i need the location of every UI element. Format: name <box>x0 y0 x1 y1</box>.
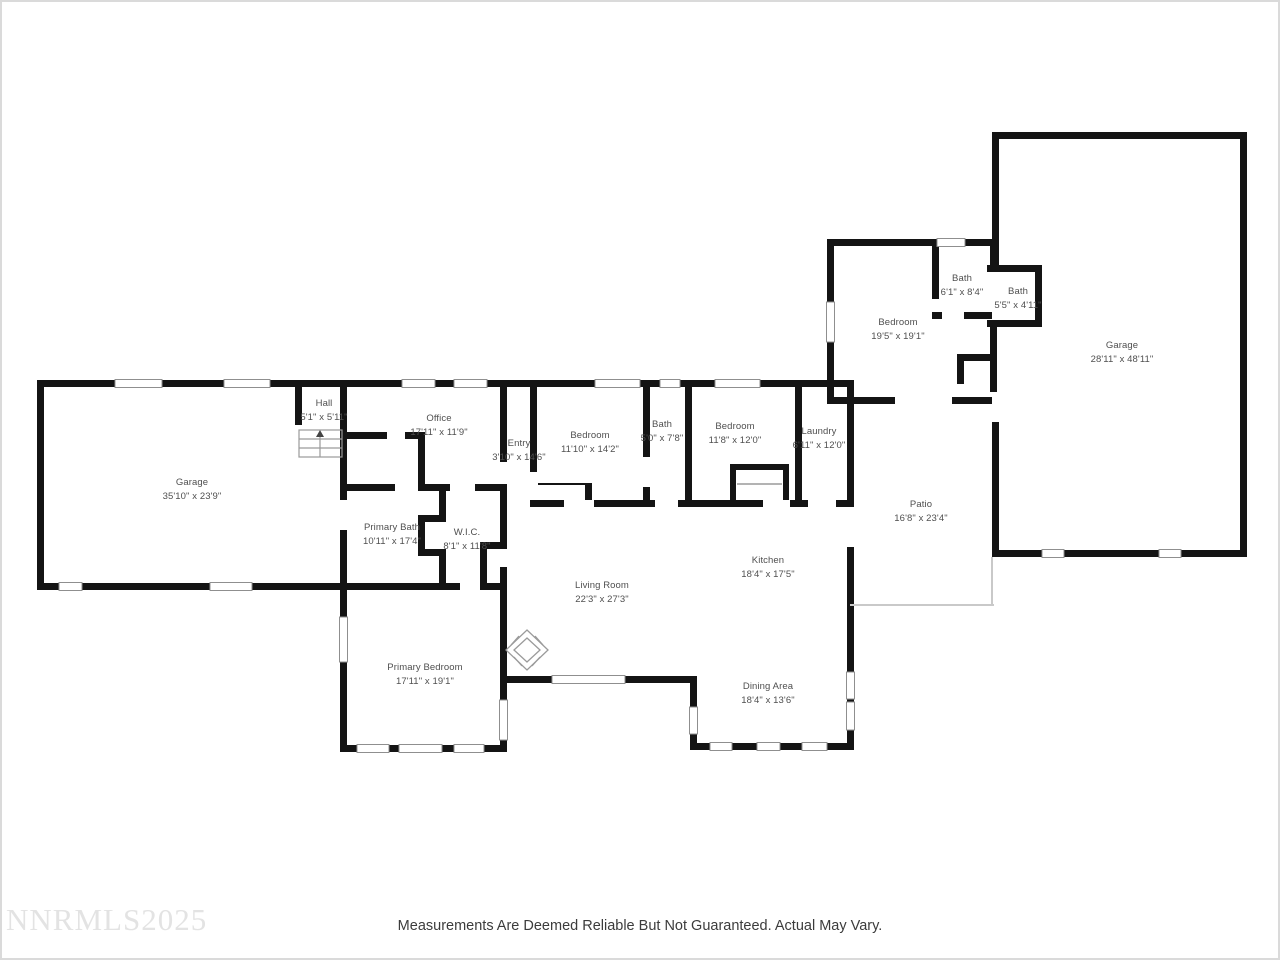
mls-watermark: NNRMLS2025 <box>6 902 207 938</box>
room-label-bath-1: Bath 5'0" x 7'8" <box>641 418 684 446</box>
windows <box>59 239 1181 753</box>
room-name: Kitchen <box>741 554 794 568</box>
room-dims: 6'1" x 8'4" <box>941 286 984 300</box>
room-dims: 18'4" x 13'6" <box>741 694 794 708</box>
room-dims: 5'1" x 5'11" <box>300 411 347 425</box>
room-name: Bath <box>941 272 984 286</box>
room-label-entry: Entry 3'10" x 14'6" <box>492 437 545 465</box>
room-name: Bedroom <box>709 420 762 434</box>
room-name: Bath <box>994 285 1041 299</box>
room-label-kitchen: Kitchen 18'4" x 17'5" <box>741 554 794 582</box>
room-name: Patio <box>894 498 947 512</box>
room-label-patio: Patio 16'8" x 23'4" <box>894 498 947 526</box>
room-label-living-room: Living Room 22'3" x 27'3" <box>575 579 629 607</box>
room-label-primary-bath: Primary Bath 10'11" x 17'4" <box>363 521 421 549</box>
room-dims: 19'5" x 19'1" <box>871 330 924 344</box>
room-dims: 17'11" x 11'9" <box>410 426 467 440</box>
room-name: Entry <box>492 437 545 451</box>
room-name: Bedroom <box>871 316 924 330</box>
room-dims: 18'4" x 17'5" <box>741 568 794 582</box>
room-label-bedroom-1: Bedroom 11'10" x 14'2" <box>561 429 619 457</box>
room-label-laundry: Laundry 6'11" x 12'0" <box>793 425 846 453</box>
room-label-bath-3: Bath 5'5" x 4'11" <box>994 285 1041 313</box>
room-label-bedroom-2: Bedroom 11'8" x 12'0" <box>709 420 762 448</box>
room-label-bath-2: Bath 6'1" x 8'4" <box>941 272 984 300</box>
room-dims: 11'8" x 12'0" <box>709 434 762 448</box>
room-dims: 6'11" x 12'0" <box>793 439 846 453</box>
fireplace-icon <box>506 630 548 670</box>
room-dims: 16'8" x 23'4" <box>894 512 947 526</box>
room-name: Bath <box>641 418 684 432</box>
room-label-garage-right: Garage 28'11" x 48'11" <box>1091 339 1154 367</box>
floorplan-page: Garage 35'10" x 23'9" Hall 5'1" x 5'11" … <box>0 0 1280 960</box>
room-dims: 11'10" x 14'2" <box>561 443 619 457</box>
room-dims: 10'11" x 17'4" <box>363 535 421 549</box>
room-name: W.I.C. <box>443 526 490 540</box>
stairs-icon <box>299 430 342 457</box>
room-name: Primary Bedroom <box>387 661 462 675</box>
room-dims: 35'10" x 23'9" <box>163 490 222 504</box>
room-dims: 5'5" x 4'11" <box>994 299 1041 313</box>
room-name: Garage <box>163 476 222 490</box>
patio-outline <box>850 557 994 606</box>
room-name: Primary Bath <box>363 521 421 535</box>
room-label-dining-area: Dining Area 18'4" x 13'6" <box>741 680 794 708</box>
room-name: Living Room <box>575 579 629 593</box>
room-dims: 5'0" x 7'8" <box>641 432 684 446</box>
room-dims: 8'1" x 11'8" <box>443 540 490 554</box>
measurement-disclaimer: Measurements Are Deemed Reliable But Not… <box>398 918 883 934</box>
room-name: Bedroom <box>561 429 619 443</box>
room-label-office: Office 17'11" x 11'9" <box>410 412 467 440</box>
room-dims: 22'3" x 27'3" <box>575 593 629 607</box>
room-name: Office <box>410 412 467 426</box>
room-name: Laundry <box>793 425 846 439</box>
room-label-primary-bedroom: Primary Bedroom 17'11" x 19'1" <box>387 661 462 689</box>
room-label-hall: Hall 5'1" x 5'11" <box>300 397 347 425</box>
room-name: Garage <box>1091 339 1154 353</box>
room-dims: 3'10" x 14'6" <box>492 451 545 465</box>
room-label-bedroom-3: Bedroom 19'5" x 19'1" <box>871 316 924 344</box>
room-dims: 17'11" x 19'1" <box>387 675 462 689</box>
room-name: Dining Area <box>741 680 794 694</box>
room-label-wic: W.I.C. 8'1" x 11'8" <box>443 526 490 554</box>
room-label-garage-left: Garage 35'10" x 23'9" <box>163 476 222 504</box>
room-dims: 28'11" x 48'11" <box>1091 353 1154 367</box>
room-name: Hall <box>300 397 347 411</box>
